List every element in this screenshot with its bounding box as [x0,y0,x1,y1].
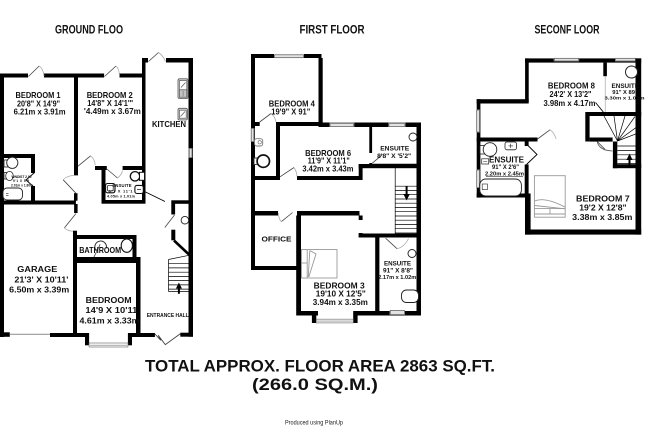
svg-text:BATHROOM: BATHROOM [79,246,121,255]
svg-text:3.98m x 4.17m: 3.98m x 4.17m [544,99,596,108]
svg-text:SECONF LOOR: SECONF LOOR [535,25,601,37]
svg-text:91" X 2'6": 91" X 2'6" [492,165,519,171]
svg-text:3.42m x 3.43m: 3.42m x 3.43m [302,165,353,174]
svg-text:6.21m x 3.91m: 6.21m x 3.91m [14,108,66,117]
svg-text:3.94m x 3.35m: 3.94m x 3.35m [313,297,368,307]
svg-text:'4.49m x 3.67m: '4.49m x 3.67m [84,107,141,116]
svg-text:ENSUITE: ENSUITE [380,145,409,152]
svg-text:3.30m x 1.02m: 3.30m x 1.02m [605,96,645,101]
svg-text:ENSUITE: ENSUITE [489,156,525,165]
svg-text:GARAGE: GARAGE [17,264,57,274]
svg-text:ENTRANCE HALL: ENTRANCE HALL [147,313,190,319]
svg-text:ENSUITE: ENSUITE [384,261,411,268]
svg-text:19'9" X 91": 19'9" X 91" [271,107,310,116]
svg-text:(266.0 SQ.M.): (266.0 SQ.M.) [252,375,378,394]
svg-text:OFFICE: OFFICE [262,235,292,244]
svg-text:2.01m x 1.80m: 2.01m x 1.80m [11,184,33,188]
svg-text:4.05m x 1.01m: 4.05m x 1.01m [107,194,136,198]
svg-text:ENSUITE: ENSUITE [113,183,132,188]
svg-text:9'1 X 5'9: 9'1 X 5'9 [13,179,29,183]
svg-text:21'3' X 10'11': 21'3' X 10'11' [14,274,68,284]
svg-text:KITCHEN: KITCHEN [152,120,186,129]
svg-text:FIRST FLOOR: FIRST FLOOR [300,25,366,37]
svg-text:2.17m x 1.02m: 2.17m x 1.02m [378,275,416,281]
svg-text:TOTAL APPROX. FLOOR AREA 2863: TOTAL APPROX. FLOOR AREA 2863 SQ.FT. [145,357,495,376]
svg-text:6.50m x 3.39m: 6.50m x 3.39m [9,285,69,295]
svg-text:BEDROOM: BEDROOM [86,295,132,305]
svg-text:GROUND FLOO: GROUND FLOO [55,25,123,37]
svg-text:4.61m x 3.33m: 4.61m x 3.33m [80,315,140,325]
svg-text:24'2' X 13'2": 24'2' X 13'2" [550,90,592,99]
svg-text:14'9 X 10'11: 14'9 X 10'11 [85,305,137,315]
svg-text:3.38m x 3.85m: 3.38m x 3.85m [572,212,632,222]
svg-text:8'8" X '5'2": 8'8" X '5'2" [377,153,411,160]
svg-text:91" X 8'8": 91" X 8'8" [383,268,413,275]
svg-text:6'7 X 11'1: 6'7 X 11'1 [109,189,134,194]
svg-text:Produced using PlanUp: Produced using PlanUp [285,420,343,427]
